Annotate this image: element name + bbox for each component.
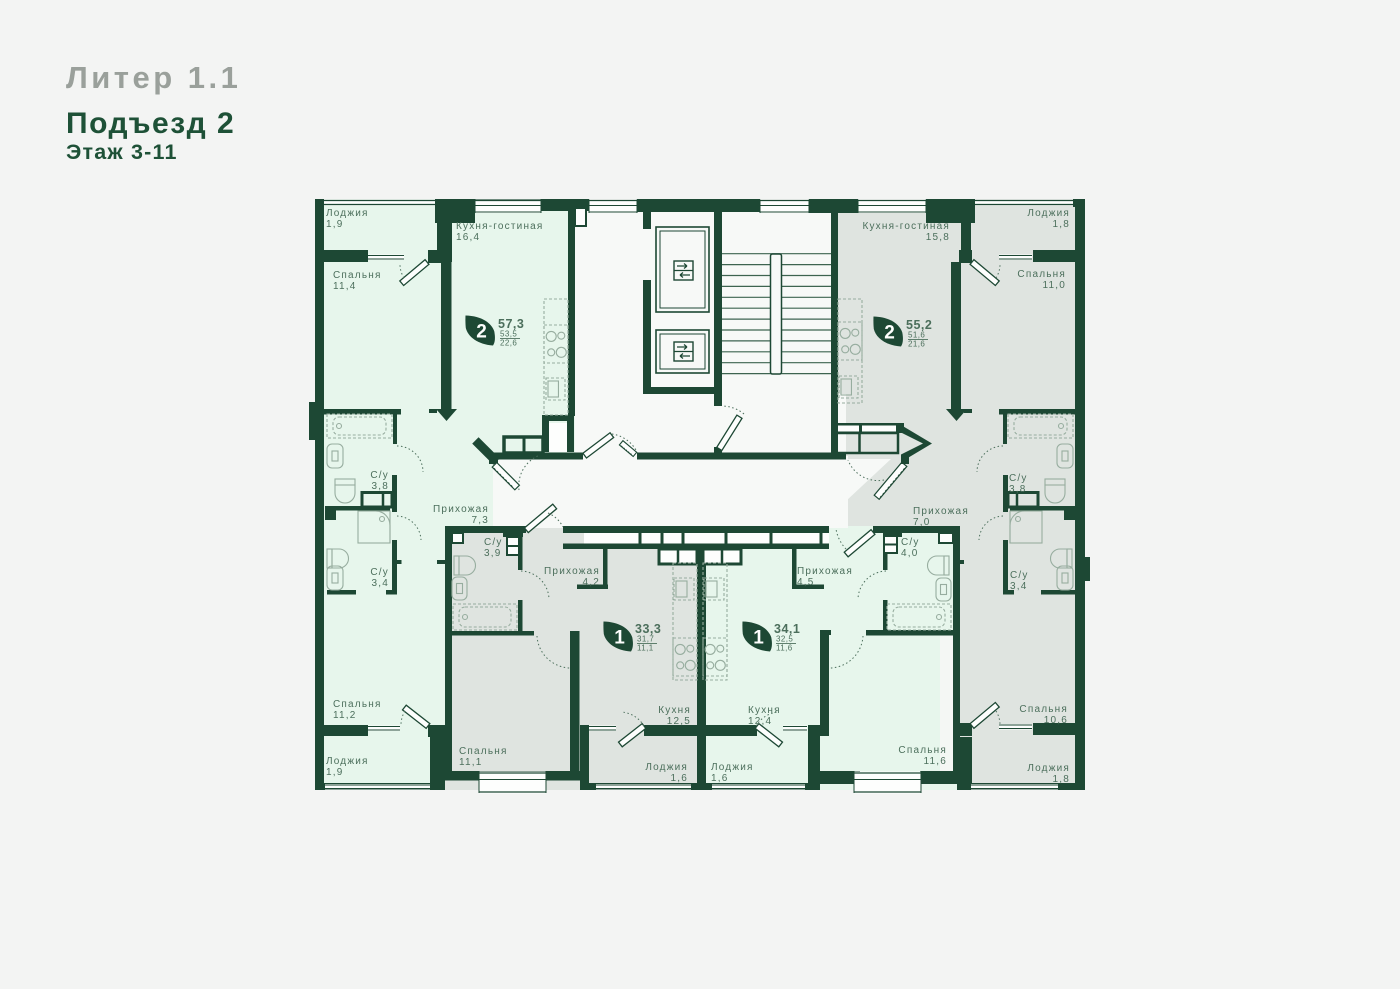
svg-text:1: 1 bbox=[753, 628, 764, 649]
svg-text:Подъезд 2: Подъезд 2 bbox=[66, 107, 235, 140]
svg-text:3,9: 3,9 bbox=[484, 548, 502, 559]
svg-text:С/у: С/у bbox=[1010, 570, 1029, 581]
svg-text:С/у: С/у bbox=[370, 470, 389, 481]
svg-text:Кухня-гостиная: Кухня-гостиная bbox=[456, 221, 544, 232]
svg-text:1,8: 1,8 bbox=[1052, 774, 1070, 785]
svg-text:12,4: 12,4 bbox=[748, 716, 772, 727]
svg-text:Спальня: Спальня bbox=[1019, 704, 1068, 715]
svg-text:53,5: 53,5 bbox=[500, 330, 517, 339]
svg-text:Кухня: Кухня bbox=[658, 705, 691, 716]
svg-text:22,6: 22,6 bbox=[500, 339, 517, 348]
svg-text:Кухня: Кухня bbox=[748, 705, 781, 716]
svg-text:1,6: 1,6 bbox=[711, 773, 729, 784]
svg-text:1,9: 1,9 bbox=[326, 767, 344, 778]
svg-text:С/у: С/у bbox=[370, 567, 389, 578]
svg-text:4,0: 4,0 bbox=[901, 548, 919, 559]
svg-text:Лоджия: Лоджия bbox=[711, 762, 754, 773]
svg-text:Прихожая: Прихожая bbox=[544, 566, 600, 577]
svg-text:Спальня: Спальня bbox=[898, 745, 947, 756]
svg-text:11,6: 11,6 bbox=[776, 644, 793, 653]
svg-text:3,8: 3,8 bbox=[371, 481, 389, 492]
svg-text:12,5: 12,5 bbox=[667, 716, 691, 727]
svg-text:7,0: 7,0 bbox=[913, 517, 931, 528]
svg-text:11,0: 11,0 bbox=[1042, 280, 1066, 291]
svg-text:Кухня-гостиная: Кухня-гостиная bbox=[862, 221, 950, 232]
svg-text:1: 1 bbox=[614, 628, 625, 649]
svg-text:Этаж 3-11: Этаж 3-11 bbox=[66, 140, 178, 164]
svg-text:С/у: С/у bbox=[901, 537, 920, 548]
svg-text:3,4: 3,4 bbox=[371, 578, 389, 589]
svg-text:Спальня: Спальня bbox=[1017, 269, 1066, 280]
svg-text:10,6: 10,6 bbox=[1044, 715, 1068, 726]
svg-text:Лоджия: Лоджия bbox=[326, 756, 369, 767]
svg-text:2: 2 bbox=[476, 322, 487, 343]
svg-text:С/у: С/у bbox=[1009, 473, 1028, 484]
svg-text:Лоджия: Лоджия bbox=[1027, 208, 1070, 219]
svg-text:7,3: 7,3 bbox=[471, 515, 489, 526]
svg-text:16,4: 16,4 bbox=[456, 232, 480, 243]
svg-text:51,6: 51,6 bbox=[908, 331, 925, 340]
svg-text:Спальня: Спальня bbox=[333, 270, 382, 281]
svg-text:Спальня: Спальня bbox=[459, 746, 508, 757]
svg-text:11,1: 11,1 bbox=[459, 757, 483, 768]
svg-text:1,9: 1,9 bbox=[326, 219, 344, 230]
svg-text:1,6: 1,6 bbox=[670, 773, 688, 784]
svg-text:3,8: 3,8 bbox=[1009, 484, 1027, 495]
svg-text:3,4: 3,4 bbox=[1010, 581, 1028, 592]
svg-text:32,5: 32,5 bbox=[776, 635, 793, 644]
svg-text:Прихожая: Прихожая bbox=[913, 506, 969, 517]
svg-text:21,6: 21,6 bbox=[908, 340, 925, 349]
svg-text:2: 2 bbox=[884, 323, 895, 344]
svg-text:1,8: 1,8 bbox=[1052, 219, 1070, 230]
svg-text:11,4: 11,4 bbox=[333, 281, 357, 292]
svg-text:Лоджия: Лоджия bbox=[645, 762, 688, 773]
svg-text:Лоджия: Лоджия bbox=[326, 208, 369, 219]
svg-text:Прихожая: Прихожая bbox=[797, 566, 853, 577]
svg-text:С/у: С/у bbox=[484, 537, 503, 548]
svg-text:4,5: 4,5 bbox=[797, 577, 815, 588]
svg-text:15,8: 15,8 bbox=[926, 232, 950, 243]
svg-text:Спальня: Спальня bbox=[333, 699, 382, 710]
svg-text:4,2: 4,2 bbox=[582, 577, 600, 588]
svg-text:Прихожая: Прихожая bbox=[433, 504, 489, 515]
svg-text:Литер 1.1: Литер 1.1 bbox=[66, 60, 241, 95]
svg-text:11,1: 11,1 bbox=[637, 644, 654, 653]
svg-text:31,7: 31,7 bbox=[637, 635, 654, 644]
svg-text:Лоджия: Лоджия bbox=[1027, 763, 1070, 774]
svg-text:11,6: 11,6 bbox=[923, 756, 947, 767]
svg-text:11,2: 11,2 bbox=[333, 710, 357, 721]
